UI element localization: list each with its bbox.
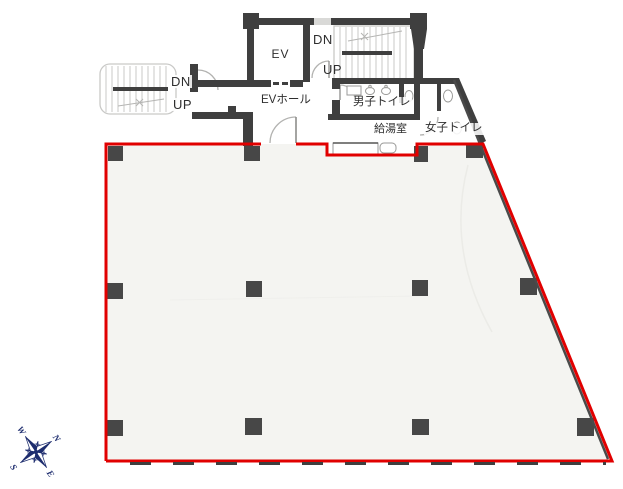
elevator-label: EV: [258, 48, 303, 60]
mens-toilet-label: 男子トイレ: [352, 97, 412, 109]
right-staircase: [334, 26, 414, 80]
compass-icon: N E S W: [0, 410, 77, 489]
right-stairs-up-label: UP: [323, 63, 342, 76]
floor-plan: N E S W EV DN UP DN UP EVホール 男子トイレ 給湯室 女…: [0, 0, 623, 489]
kitchenette-label: 給湯室: [373, 124, 408, 135]
compass-west-label: W: [15, 424, 28, 437]
compass-north-label: N: [50, 432, 63, 444]
womens-toilet-label: 女子トイレ: [424, 123, 484, 135]
lease-area-floor: [106, 144, 612, 461]
compass-east-label: E: [44, 467, 56, 478]
left-stairs-up-label: UP: [172, 98, 193, 111]
ev-hall-label: EVホール: [261, 95, 311, 107]
floor-plan-drawing: N E S W: [0, 0, 623, 489]
left-stairs-down-label: DN: [170, 75, 192, 88]
compass-south-label: S: [8, 462, 19, 472]
left-staircase: [100, 64, 176, 114]
right-stairs-down-label: DN: [313, 33, 333, 46]
